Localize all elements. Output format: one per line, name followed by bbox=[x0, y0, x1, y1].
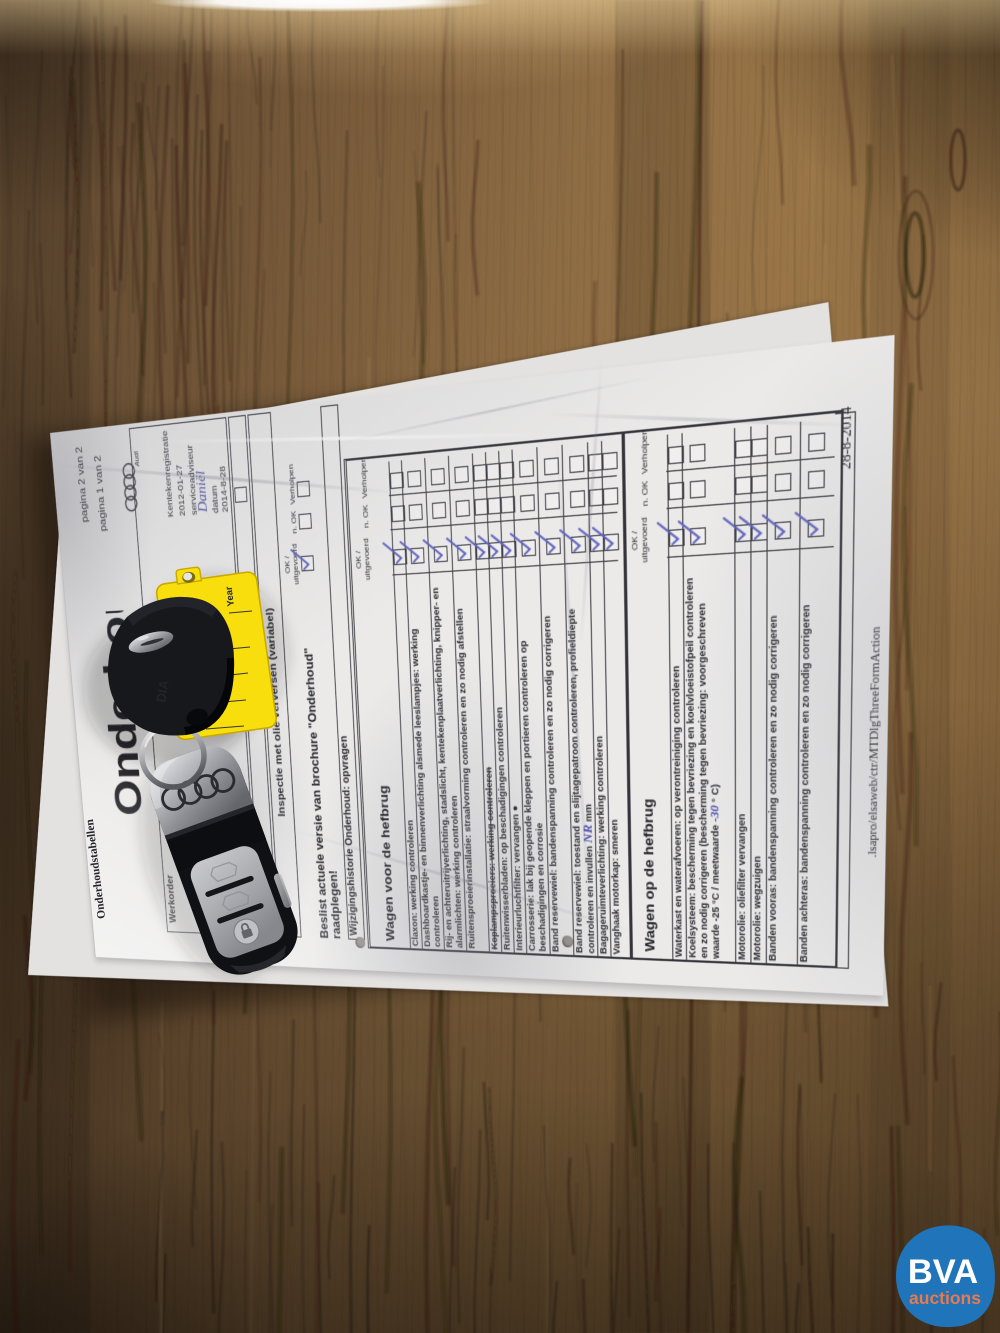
svg-text:BVA: BVA bbox=[908, 1253, 978, 1291]
svg-text:auctions: auctions bbox=[909, 1288, 981, 1308]
